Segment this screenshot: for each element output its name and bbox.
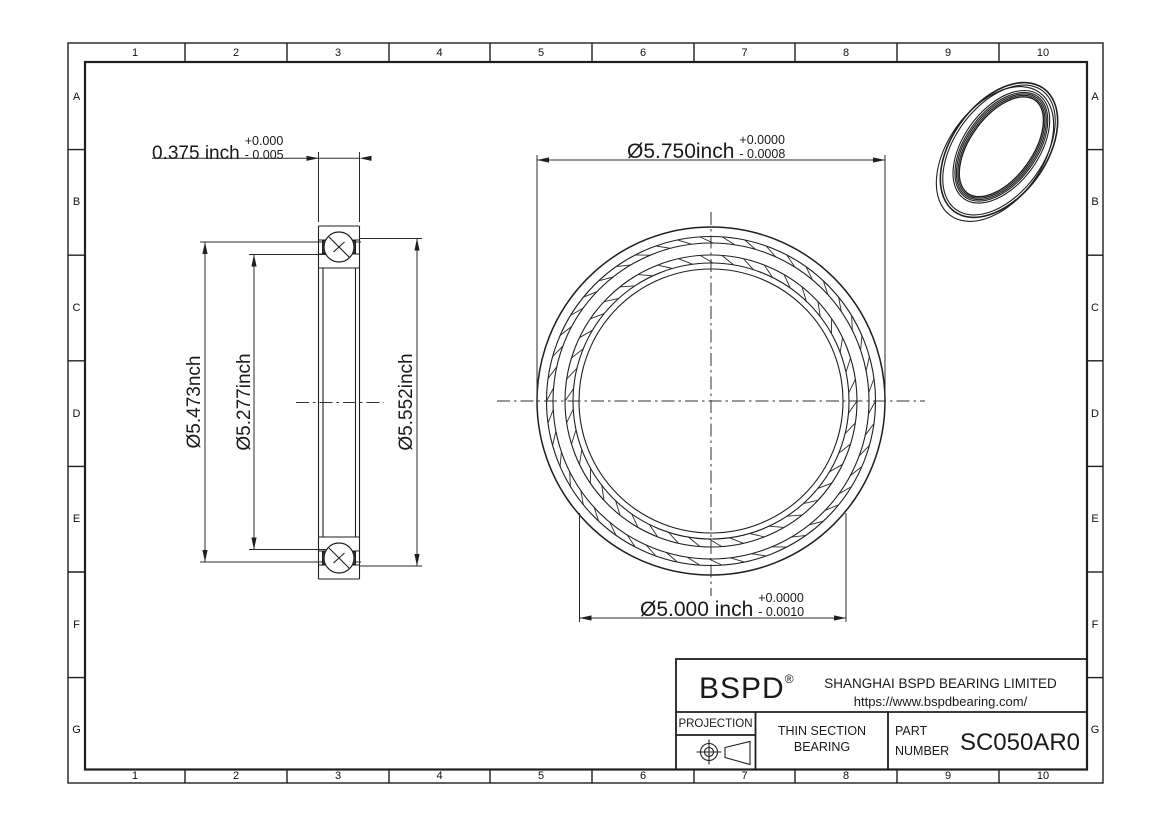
ball-tick xyxy=(848,401,857,413)
isometric-view xyxy=(912,61,1081,243)
ball-tick xyxy=(548,410,553,424)
ball-tick xyxy=(861,336,862,351)
grid-row-label-left: F xyxy=(68,572,85,678)
dim-section-width-tolerance: +0.000 - 0.005 xyxy=(245,134,284,163)
ball-tick xyxy=(869,379,874,393)
grid-row-label-right: F xyxy=(1087,572,1103,678)
ball-tick xyxy=(658,265,673,268)
dim-right-label: Ø5.552inch xyxy=(396,353,418,450)
dim-bore-diameter-tolerance: +0.0000 - 0.0010 xyxy=(758,591,804,620)
dim-outer-diameter-tolerance: +0.0000 - 0.0008 xyxy=(739,133,785,162)
dim-outer-diameter: Ø5.750inch +0.0000 - 0.0008 xyxy=(627,133,785,162)
grid-row-label-left: A xyxy=(68,44,85,150)
projection-label: PROJECTION xyxy=(676,712,755,735)
dim-left-inner-label: Ø5.277inch xyxy=(234,353,256,450)
grid-row-label-left: G xyxy=(68,678,85,784)
grid-row-label-right: D xyxy=(1087,361,1103,467)
ball-tick xyxy=(553,431,556,445)
ball-tick xyxy=(869,401,876,414)
company-website: https://www.bspdbearing.com/ xyxy=(798,694,1083,709)
registered-trademark-symbol: ® xyxy=(785,673,794,685)
company-logo-text: BSPD xyxy=(699,674,785,704)
grid-col-label-top: 5 xyxy=(490,43,592,62)
grid-row-label-right: B xyxy=(1087,150,1103,256)
ball-tick xyxy=(752,554,767,556)
ball-tick xyxy=(846,358,851,372)
grid-col-label-bottom: 1 xyxy=(85,770,185,784)
ball-tick xyxy=(567,409,574,423)
ball-tick xyxy=(840,338,842,353)
dim-bore-diameter-value: Ø5.000 inch xyxy=(640,599,753,620)
ball-tick xyxy=(638,275,653,276)
product-name: THIN SECTION BEARING xyxy=(756,724,888,755)
ball-tick xyxy=(849,379,856,393)
ball-tick xyxy=(730,558,744,562)
ball-tick xyxy=(679,259,693,265)
grid-col-label-top: 8 xyxy=(795,43,897,62)
grid-row-label-left: E xyxy=(68,466,85,572)
grid-col-label-bottom: 5 xyxy=(490,770,592,784)
dim-outer-diameter-value: Ø5.750inch xyxy=(627,141,734,162)
grid-col-label-top: 10 xyxy=(999,43,1087,62)
dim-left-outer-label: Ø5.473nch xyxy=(184,356,206,449)
part-number-label-line2: NUMBER xyxy=(895,745,949,758)
grid-col-label-bottom: 9 xyxy=(897,770,999,784)
grid-col-label-top: 9 xyxy=(897,43,999,62)
grid-col-label-bottom: 10 xyxy=(999,770,1087,784)
grid-row-label-right: A xyxy=(1087,44,1103,150)
ball-tick xyxy=(750,534,765,537)
grid-col-label-top: 7 xyxy=(694,43,795,62)
grid-row-label-right: C xyxy=(1087,255,1103,361)
dim-bore-diameter: Ø5.000 inch +0.0000 - 0.0010 xyxy=(640,591,804,620)
grid-col-label-bottom: 3 xyxy=(287,770,389,784)
projection-symbol xyxy=(697,740,751,765)
grid-col-label-top: 4 xyxy=(389,43,490,62)
part-number-label-line1: PART xyxy=(895,725,927,738)
grid-row-label-left: D xyxy=(68,361,85,467)
grid-col-label-bottom: 8 xyxy=(795,770,897,784)
dim-section-width: 0.375 inch +0.000 - 0.005 xyxy=(152,134,284,163)
grid-col-label-top: 3 xyxy=(287,43,389,62)
ball-tick xyxy=(769,526,784,527)
ball-tick xyxy=(656,246,671,248)
ball-tick xyxy=(547,388,554,401)
grid-col-label-bottom: 7 xyxy=(694,770,795,784)
grid-row-label-left: C xyxy=(68,255,85,361)
ball-tick xyxy=(866,357,869,371)
drawing-sheet: 0.375 inch +0.000 - 0.005 Ø5.750inch +0.… xyxy=(0,0,1170,827)
grid-col-label-bottom: 4 xyxy=(389,770,490,784)
ball-tick xyxy=(560,452,561,467)
ball-tick xyxy=(730,538,744,544)
grid-col-label-bottom: 6 xyxy=(592,770,694,784)
front-view xyxy=(497,155,925,622)
ball-tick xyxy=(580,450,582,465)
grid-row-label-right: G xyxy=(1087,678,1103,784)
ball-tick xyxy=(678,240,692,244)
dim-section-width-value: 0.375 inch xyxy=(152,144,240,163)
company-logo: BSPD ® xyxy=(699,674,794,704)
company-name: SHANGHAI BSPD BEARING LIMITED xyxy=(798,676,1083,691)
ball-tick xyxy=(572,430,577,444)
grid-col-label-top: 2 xyxy=(185,43,287,62)
part-number-value: SC050AR0 xyxy=(950,729,1090,757)
grid-col-label-bottom: 2 xyxy=(185,770,287,784)
grid-row-label-left: B xyxy=(68,150,85,256)
ball-tick xyxy=(565,389,574,401)
grid-row-label-right: E xyxy=(1087,466,1103,572)
grid-col-label-top: 6 xyxy=(592,43,694,62)
grid-col-label-top: 1 xyxy=(85,43,185,62)
